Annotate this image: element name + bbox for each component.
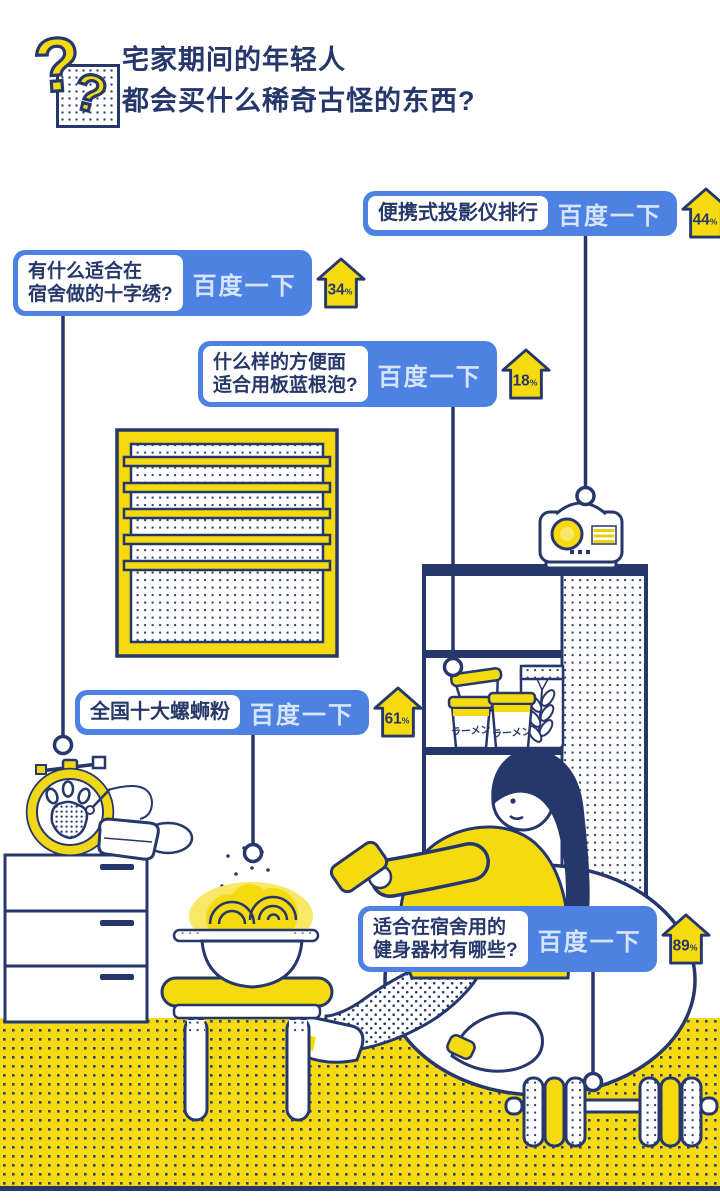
- noodle-bowl: [174, 846, 318, 987]
- search-query[interactable]: 全国十大螺蛳粉: [80, 695, 240, 729]
- drawer-handle: [100, 864, 134, 870]
- baidu-search-button[interactable]: 百度一下: [528, 922, 652, 957]
- search-bar: 便携式投影仪排行 百度一下: [363, 191, 677, 236]
- query-line: 适合用板蓝根泡?: [213, 374, 358, 397]
- callout-cross-stitch: 有什么适合在 宿舍做的十字绣? 百度一下 34%: [13, 250, 366, 316]
- search-query[interactable]: 适合在宿舍用的 健身器材有哪些?: [363, 911, 528, 967]
- scene-illustration: ラーメン ラーメン: [0, 0, 720, 1201]
- baidu-search-button[interactable]: 百度一下: [240, 695, 364, 730]
- percent-badge: 61%: [373, 685, 423, 739]
- baidu-search-button[interactable]: 百度一下: [183, 266, 307, 301]
- query-line: 宿舍做的十字绣?: [28, 283, 173, 306]
- infographic-canvas: ラーメン ラーメン: [0, 0, 720, 1201]
- percent-badge: 18%: [501, 347, 551, 401]
- floor-edge: [0, 1186, 720, 1191]
- query-line: 适合在宿舍用的: [373, 916, 518, 939]
- drawer-handle: [100, 920, 134, 926]
- query-line: 便携式投影仪排行: [378, 201, 538, 225]
- search-query[interactable]: 有什么适合在 宿舍做的十字绣?: [18, 255, 183, 311]
- search-bar: 有什么适合在 宿舍做的十字绣? 百度一下: [13, 250, 312, 316]
- callout-luosifen: 全国十大螺蛳粉 百度一下 61%: [75, 685, 423, 739]
- drawer-handle: [100, 974, 134, 980]
- baidu-search-button[interactable]: 百度一下: [548, 196, 672, 231]
- callout-projector: 便携式投影仪排行 百度一下 44%: [363, 186, 720, 240]
- search-bar: 全国十大螺蛳粉 百度一下: [75, 690, 369, 735]
- window-blinds: [117, 430, 337, 656]
- percent-badge: 89%: [661, 912, 711, 966]
- search-bar: 什么样的方便面 适合用板蓝根泡? 百度一下: [198, 341, 497, 407]
- baidu-search-button[interactable]: 百度一下: [368, 357, 492, 392]
- projector: [540, 503, 622, 568]
- percent-badge: 44%: [681, 186, 720, 240]
- search-query[interactable]: 便携式投影仪排行: [368, 196, 548, 230]
- callout-instant-noodle: 什么样的方便面 适合用板蓝根泡? 百度一下 18%: [198, 341, 551, 407]
- paw-print: [52, 802, 87, 838]
- query-line: 健身器材有哪些?: [373, 939, 518, 962]
- query-line: 什么样的方便面: [213, 351, 358, 374]
- face-mask: [99, 819, 192, 859]
- drawer-unit: [5, 855, 147, 1022]
- search-bar: 适合在宿舍用的 健身器材有哪些? 百度一下: [358, 906, 657, 972]
- query-line: 有什么适合在: [28, 260, 173, 283]
- arm: [390, 862, 470, 878]
- search-query[interactable]: 什么样的方便面 适合用板蓝根泡?: [203, 346, 368, 402]
- percent-badge: 34%: [316, 256, 366, 310]
- query-line: 全国十大螺蛳粉: [90, 700, 230, 724]
- callout-fitness: 适合在宿舍用的 健身器材有哪些? 百度一下 89%: [358, 906, 711, 972]
